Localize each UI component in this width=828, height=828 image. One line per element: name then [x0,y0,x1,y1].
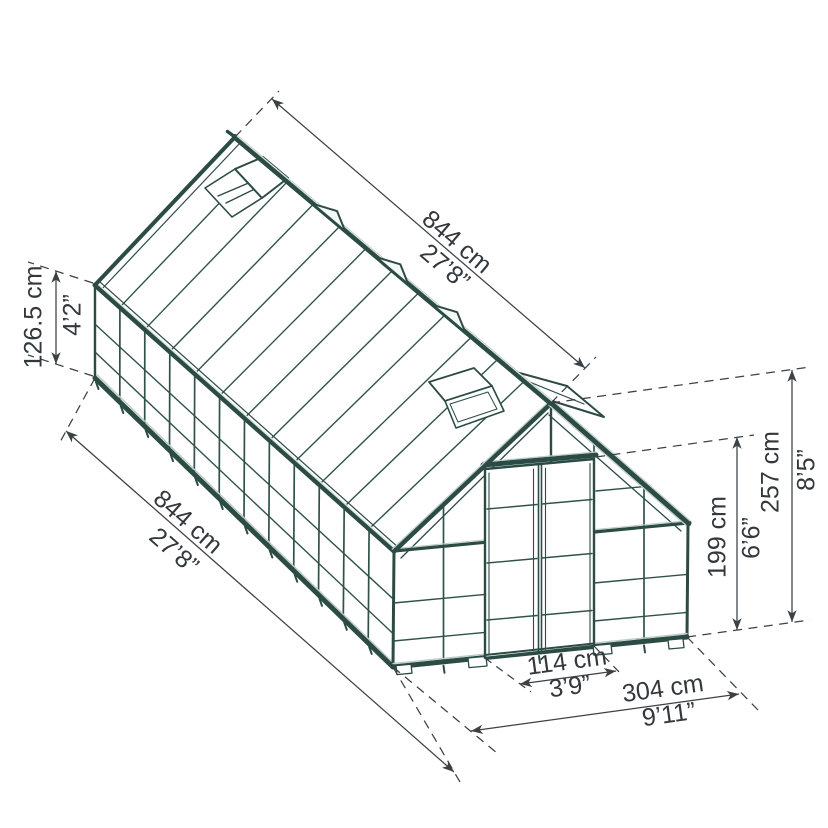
dim-wall-height-cm-label: 126.5 cm [20,266,48,369]
dim-door-width-ft-label: 3’9” [547,670,592,703]
double-door [483,452,596,658]
diagram-svg: 844 cm 27’8” 126.5 cm 4’2” 844 cm 27’8” … [0,0,828,828]
dim-door-height-cm-label: 199 cm [704,496,732,578]
dim-wall-height-ft-label: 4’2” [59,294,87,336]
dim-front-width-ft-label: 9’11” [640,697,697,732]
dim-door-height-ft-label: 6’6” [738,517,766,559]
dim-ridge-height-ft-label: 8’5” [793,449,821,491]
greenhouse-dimension-diagram: 844 cm 27’8” 126.5 cm 4’2” 844 cm 27’8” … [0,0,828,828]
dim-ridge-height-cm-label: 257 cm [757,431,785,513]
greenhouse-drawing [95,132,690,675]
